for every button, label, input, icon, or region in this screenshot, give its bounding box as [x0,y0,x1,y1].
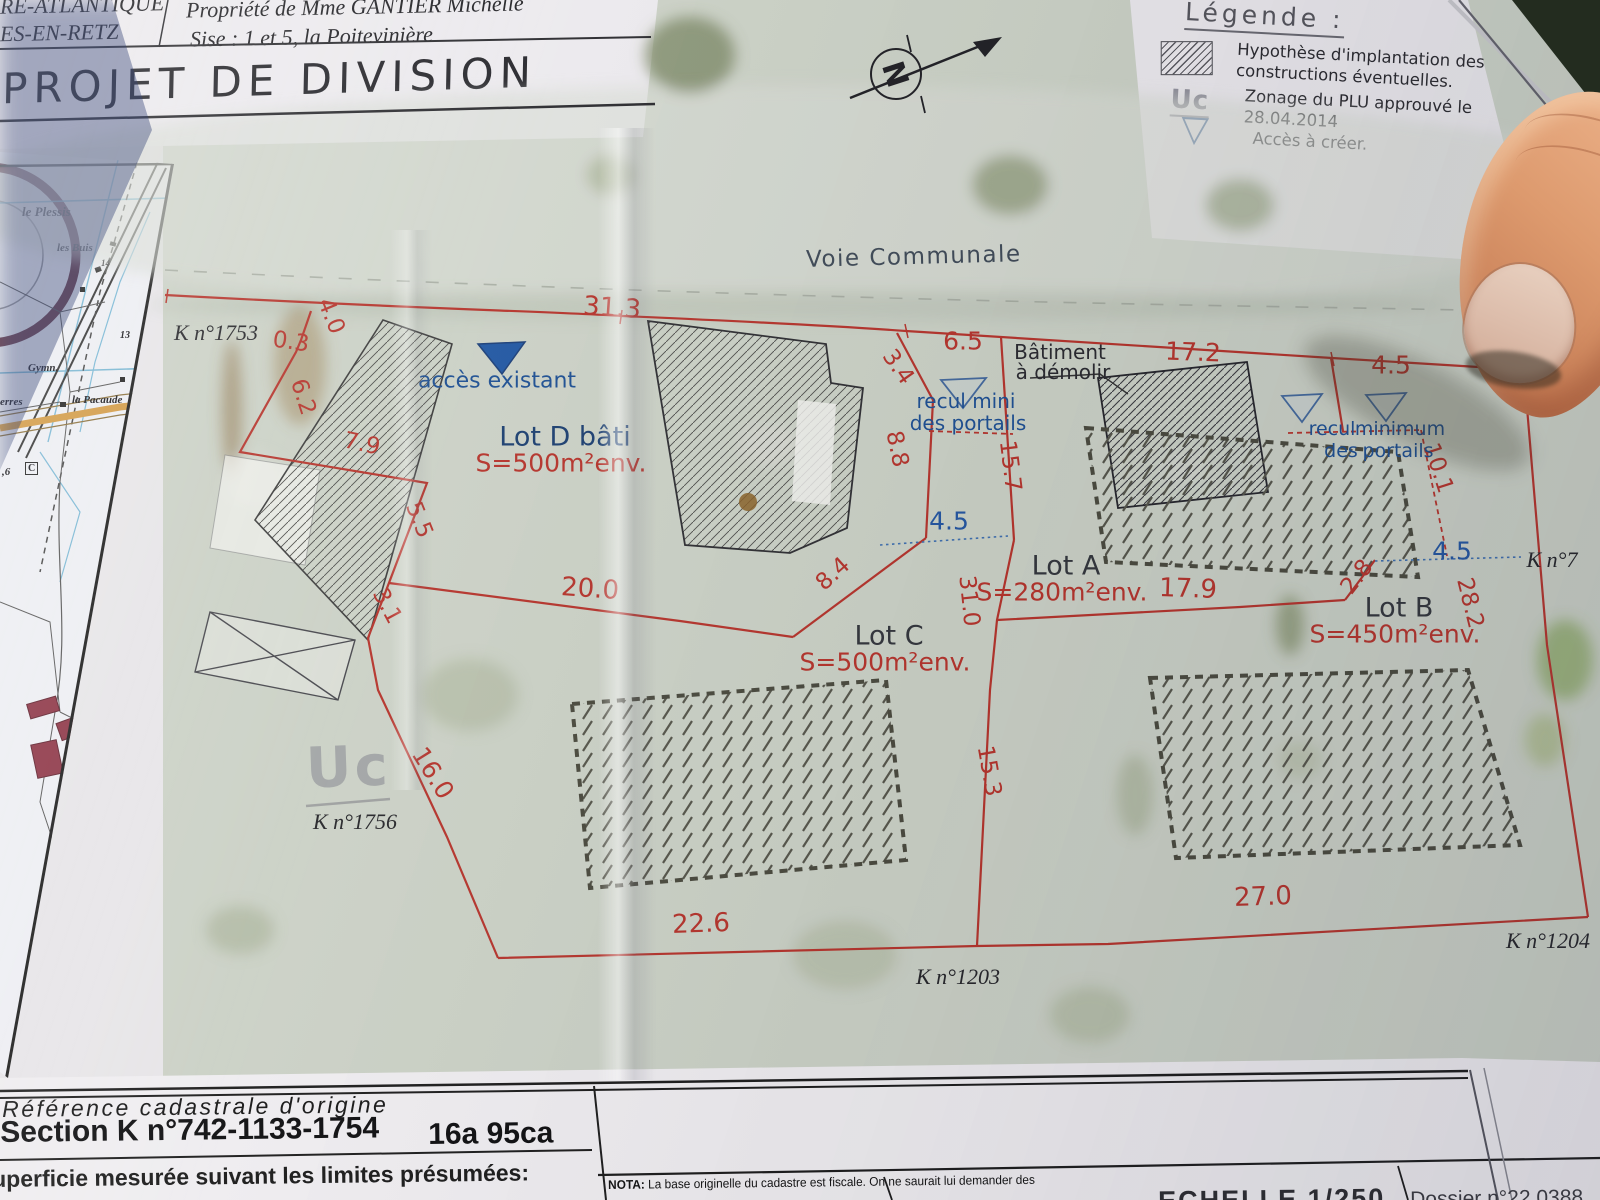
dimension-label: 15.7 [994,439,1026,493]
parcel-number-label: K n°1204 [1506,928,1590,954]
footer-dossier: Dossier n°22 0388 [1410,1186,1583,1200]
dimension-label: 4.0 [312,294,350,338]
road-label: Voie Communale [806,241,1022,273]
footer-echelle: ECHELLE 1/250 [1158,1183,1385,1200]
dimension-label: 0.3 [271,327,311,358]
annotation-label: recul [1309,418,1356,440]
uc-zoning-watermark: Uc [305,734,392,802]
dimension-label: 31.3 [582,291,642,325]
dimension-label: 7.9 [341,427,382,460]
dimension-label: 16.0 [406,742,460,805]
dimension-label: 8.4 [811,552,856,596]
footer-area: 16a 95ca [428,1116,554,1152]
plan-labels: Voie Communale Uc 31.34.00.36.27.95.53.1… [0,0,1600,1200]
lot-area-label: S=450m²env. [1310,620,1481,649]
thumbnail [1457,257,1582,390]
dimension-label: 6.2 [285,376,321,419]
dimension-label: 27.0 [1234,881,1293,913]
lot-area-label: S=500m²env. [800,648,971,677]
dimension-label: 4.5 [929,507,969,536]
dimension-label: 3.4 [877,345,919,390]
parcel-number-label: K n°1203 [916,964,1000,990]
parcel-number-label: K n°7 [1527,547,1578,573]
annotation-label: accès existant [418,369,576,394]
parcel-number-label: K n°1753 [174,320,258,346]
lot-area-label: S=280m²env. [977,578,1148,607]
annotation-label: des [1324,440,1358,462]
dimension-label: 22.6 [672,908,731,940]
parcel-number-label: K n°1756 [313,809,397,835]
dimension-label: 17.2 [1165,337,1222,368]
annotation-label: recul mini [917,389,1016,413]
photographed-division-plan: le Plessisles Buis1413Gymn.la Pacaudeerr… [0,0,1600,1200]
annotation-label: des portails [910,411,1027,435]
footer-section: Section K n°742-1133-1754 [0,1111,379,1150]
lot-area-label: S=500m²env. [476,449,647,478]
dimension-label: 6.5 [943,327,983,356]
dimension-label: 20.0 [560,572,620,606]
dimension-label: 17.9 [1159,573,1218,605]
annotation-label: à démolir [1016,360,1111,384]
dimension-label: 15.3 [972,744,1006,799]
dimension-label: 4.5 [1432,537,1472,566]
dimension-label: 3.1 [367,584,407,629]
dimension-label: 5.5 [400,498,438,542]
dimension-label: 8.8 [880,428,913,469]
